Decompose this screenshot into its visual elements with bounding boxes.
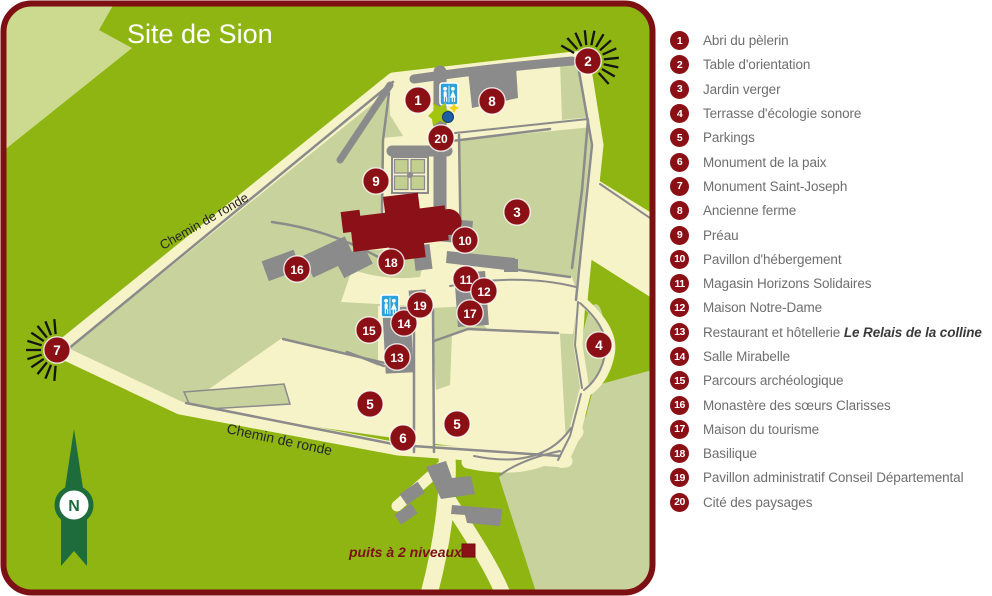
legend-label: Jardin verger (703, 82, 781, 97)
svg-text:2: 2 (584, 54, 592, 69)
legend-item-9: 9Préau (670, 225, 988, 244)
svg-text:14: 14 (397, 317, 411, 331)
legend-badge: 13 (670, 323, 689, 342)
legend-label: Ancienne ferme (703, 203, 796, 218)
puits-label: puits à 2 niveaux (348, 544, 463, 560)
svg-text:16: 16 (290, 263, 304, 277)
legend-badge: 9 (670, 226, 689, 245)
map-title: Site de Sion (127, 19, 273, 49)
legend-label: Monument Saint-Joseph (703, 179, 847, 194)
legend-item-20: 20Cité des paysages (670, 493, 988, 512)
map-marker-10: 10 (452, 227, 478, 253)
legend-label: Pavillon administratif Conseil Départeme… (703, 470, 963, 485)
legend-label: Préau (703, 228, 739, 243)
svg-text:13: 13 (390, 351, 404, 365)
legend-item-12: 12Maison Notre-Dame (670, 298, 988, 317)
legend-item-3: 3Jardin verger (670, 80, 988, 99)
legend-badge: 11 (670, 274, 689, 293)
page: N Site de Sion Chemin de ronde Chemin de… (0, 0, 992, 596)
legend-item-4: 4Terrasse d'écologie sonore (670, 104, 988, 123)
svg-text:12: 12 (477, 285, 491, 299)
map-marker-3: 3 (504, 199, 530, 225)
map-marker-18: 18 (378, 249, 404, 275)
legend-label: Monument de la paix (703, 155, 826, 170)
svg-text:9: 9 (372, 174, 380, 189)
legend-badge: 2 (670, 55, 689, 74)
legend-item-7: 7Monument Saint-Joseph (670, 177, 988, 196)
svg-text:19: 19 (413, 299, 427, 313)
svg-text:1: 1 (414, 93, 422, 108)
legend-label: Terrasse d'écologie sonore (703, 106, 861, 121)
map-marker-17: 17 (457, 300, 483, 326)
legend-badge: 7 (670, 177, 689, 196)
legend-item-10: 10Pavillon d'hébergement (670, 250, 988, 269)
legend-label: Monastère des sœurs Clarisses (703, 398, 891, 413)
legend-label: Magasin Horizons Solidaires (703, 276, 871, 291)
map-marker-9: 9 (363, 168, 389, 194)
legend-badge: 3 (670, 80, 689, 99)
legend-item-17: 17Maison du tourisme (670, 420, 988, 439)
legend-badge: 10 (670, 250, 689, 269)
legend: 1Abri du pèlerin2Table d'orientation3Jar… (670, 31, 988, 517)
wc-icon (440, 83, 458, 105)
map-marker-13: 13 (384, 344, 410, 370)
map-marker-2: 2 (575, 48, 601, 74)
legend-item-8: 8Ancienne ferme (670, 201, 988, 220)
svg-text:5: 5 (453, 417, 461, 432)
compass-letter: N (68, 498, 80, 515)
svg-text:18: 18 (384, 256, 398, 270)
legend-label: Basilique (703, 446, 757, 461)
legend-badge: 17 (670, 420, 689, 439)
legend-badge: 4 (670, 104, 689, 123)
map-marker-15: 15 (356, 317, 382, 343)
map-marker-1: 1 (405, 87, 431, 113)
map-marker-19: 19 (407, 292, 433, 318)
svg-text:10: 10 (458, 234, 472, 248)
legend-badge: 8 (670, 201, 689, 220)
legend-item-2: 2Table d'orientation (670, 55, 988, 74)
map-marker-8: 8 (479, 88, 505, 114)
legend-badge: 18 (670, 444, 689, 463)
legend-item-15: 15Parcours archéologique (670, 371, 988, 390)
site-map-image: N Site de Sion Chemin de ronde Chemin de… (0, 0, 660, 596)
legend-label: Parcours archéologique (703, 373, 843, 388)
legend-label: Salle Mirabelle (703, 349, 790, 364)
legend-label: Cité des paysages (703, 495, 812, 510)
legend-label: Maison du tourisme (703, 422, 819, 437)
legend-label: Restaurant et hôtellerie Le Relais de la… (703, 325, 982, 340)
svg-text:17: 17 (463, 307, 477, 321)
legend-item-16: 16Monastère des sœurs Clarisses (670, 395, 988, 414)
legend-label: Maison Notre-Dame (703, 300, 822, 315)
legend-badge: 5 (670, 128, 689, 147)
map-marker-20: 20 (428, 125, 454, 151)
svg-text:8: 8 (488, 94, 496, 109)
legend-item-11: 11Magasin Horizons Solidaires (670, 274, 988, 293)
legend-badge: 20 (670, 493, 689, 512)
legend-item-6: 6Monument de la paix (670, 152, 988, 171)
svg-text:5: 5 (366, 397, 374, 412)
map-marker-4: 4 (586, 332, 612, 358)
map-marker-16: 16 (284, 256, 310, 282)
legend-label: Table d'orientation (703, 57, 810, 72)
map-marker-5: 5 (444, 411, 470, 437)
svg-text:7: 7 (53, 343, 61, 358)
svg-text:4: 4 (595, 338, 603, 353)
legend-item-13: 13Restaurant et hôtellerie Le Relais de … (670, 323, 988, 342)
svg-text:3: 3 (513, 205, 521, 220)
legend-label: Abri du pèlerin (703, 33, 789, 48)
legend-badge: 6 (670, 153, 689, 172)
legend-badge: 1 (670, 31, 689, 50)
svg-text:20: 20 (434, 132, 448, 146)
legend-badge: 14 (670, 347, 689, 366)
legend-item-5: 5Parkings (670, 128, 988, 147)
map-marker-6: 6 (390, 425, 416, 451)
legend-badge: 19 (670, 468, 689, 487)
legend-item-18: 18Basilique (670, 444, 988, 463)
map-marker-7: 7 (44, 337, 70, 363)
formal-garden (392, 157, 428, 193)
legend-badge: 16 (670, 396, 689, 415)
legend-item-19: 19Pavillon administratif Conseil Départe… (670, 468, 988, 487)
svg-text:15: 15 (362, 324, 376, 338)
legend-badge: 12 (670, 298, 689, 317)
legend-item-14: 14Salle Mirabelle (670, 347, 988, 366)
svg-text:6: 6 (399, 431, 407, 446)
legend-label: Pavillon d'hébergement (703, 252, 841, 267)
legend-label: Parkings (703, 130, 755, 145)
site-map: N Site de Sion Chemin de ronde Chemin de… (0, 0, 660, 596)
puits-symbol (462, 544, 475, 557)
svg-text:11: 11 (460, 273, 473, 287)
map-marker-5: 5 (357, 391, 383, 417)
legend-item-1: 1Abri du pèlerin (670, 31, 988, 50)
legend-badge: 15 (670, 371, 689, 390)
